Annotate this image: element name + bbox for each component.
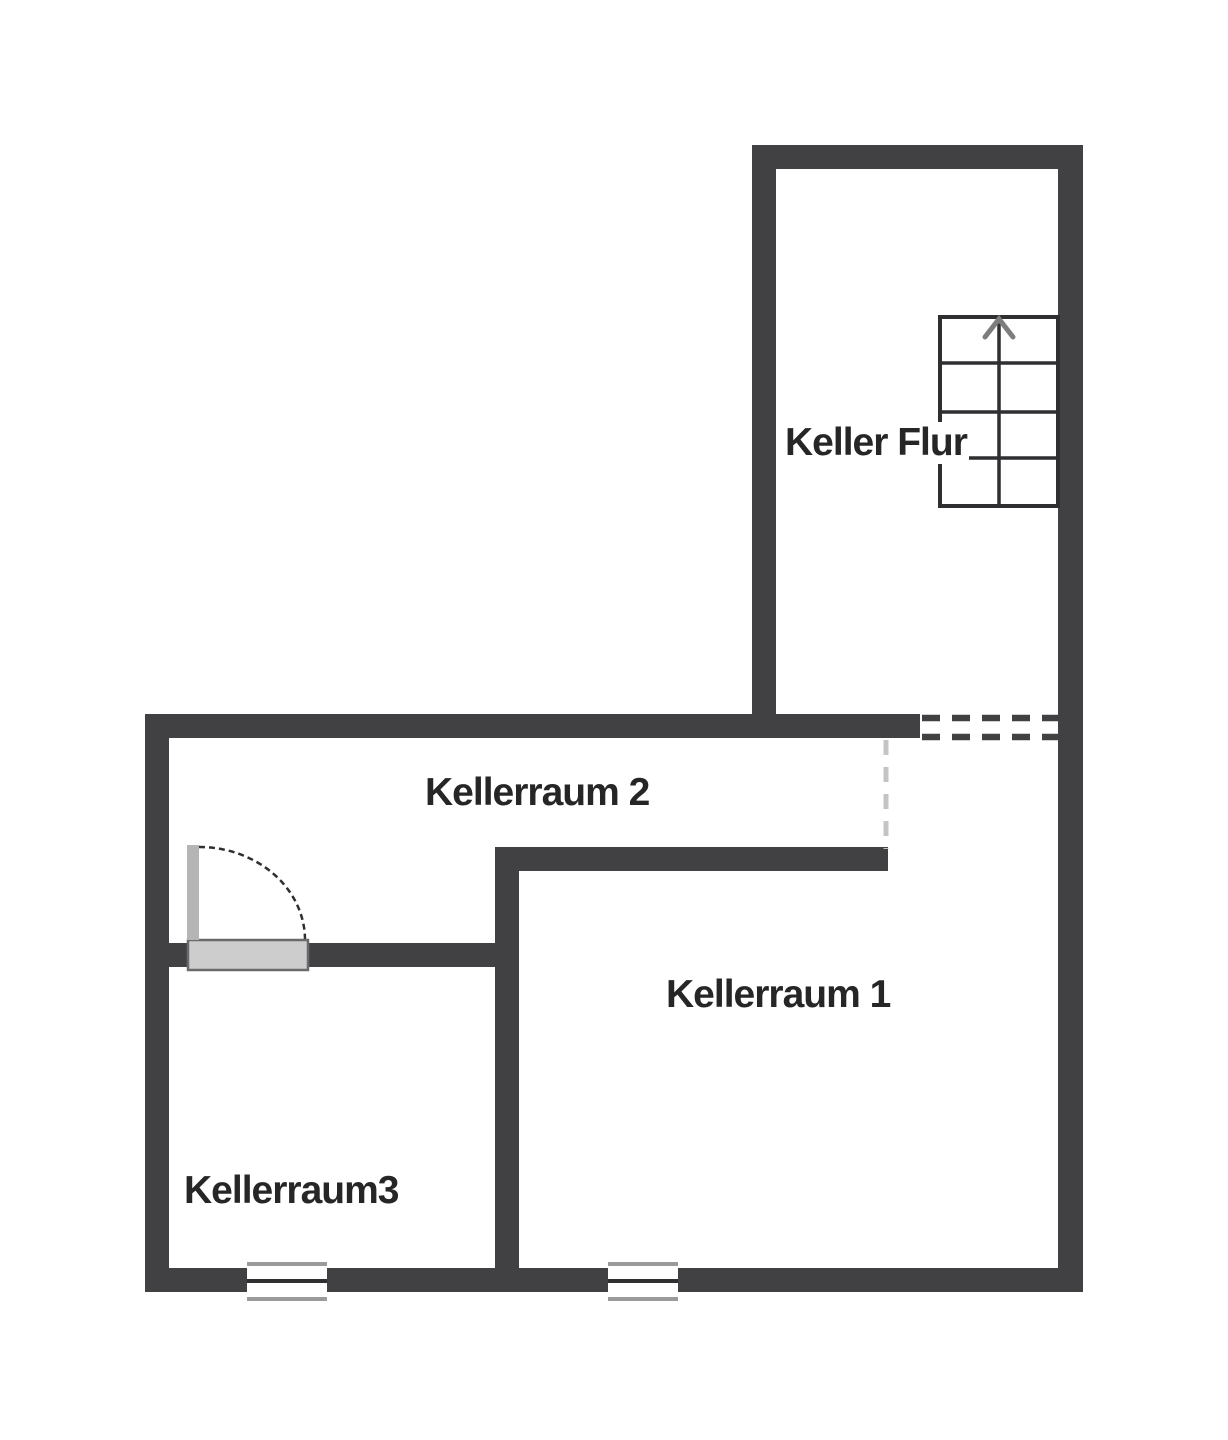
door-leaf: [187, 845, 199, 940]
kellerraum2-top-wall: [145, 714, 920, 738]
room-label-kellerraum-1: Kellerraum 1: [664, 974, 892, 1016]
window-2: [608, 1262, 678, 1302]
room-label-keller-flur: Keller Flur: [783, 422, 969, 464]
door: [187, 845, 308, 970]
window-1-middle-line: [247, 1279, 327, 1283]
room-label-kellerraum-2: Kellerraum 2: [423, 772, 651, 814]
window-1-outer-line: [247, 1262, 327, 1266]
door-threshold: [188, 940, 308, 970]
interior-wall-horizontal: [495, 847, 888, 871]
interior-wall-vertical: [495, 847, 519, 1292]
window-2-inner-line: [608, 1297, 678, 1301]
window-1-inner-line: [247, 1297, 327, 1301]
keller-flur-left-wall: [752, 145, 776, 738]
open-passage: [922, 718, 1058, 737]
window-1: [247, 1262, 327, 1302]
door-swing-arc: [199, 847, 305, 940]
door-wall-right: [308, 943, 519, 967]
floor-plan-drawing: [0, 0, 1228, 1440]
window-2-middle-line: [608, 1279, 678, 1283]
window-2-outer-line: [608, 1262, 678, 1266]
door-wall-left-stub: [169, 943, 188, 967]
right-outer-wall: [1058, 145, 1083, 1292]
keller-flur-top-wall: [752, 145, 1083, 169]
left-outer-wall: [145, 714, 169, 1292]
room-label-kellerraum-3: Kellerraum3: [182, 1170, 400, 1212]
stairs: [940, 317, 1058, 506]
floor-plan: Keller Flur Kellerraum 2 Kellerraum 1 Ke…: [0, 0, 1228, 1440]
